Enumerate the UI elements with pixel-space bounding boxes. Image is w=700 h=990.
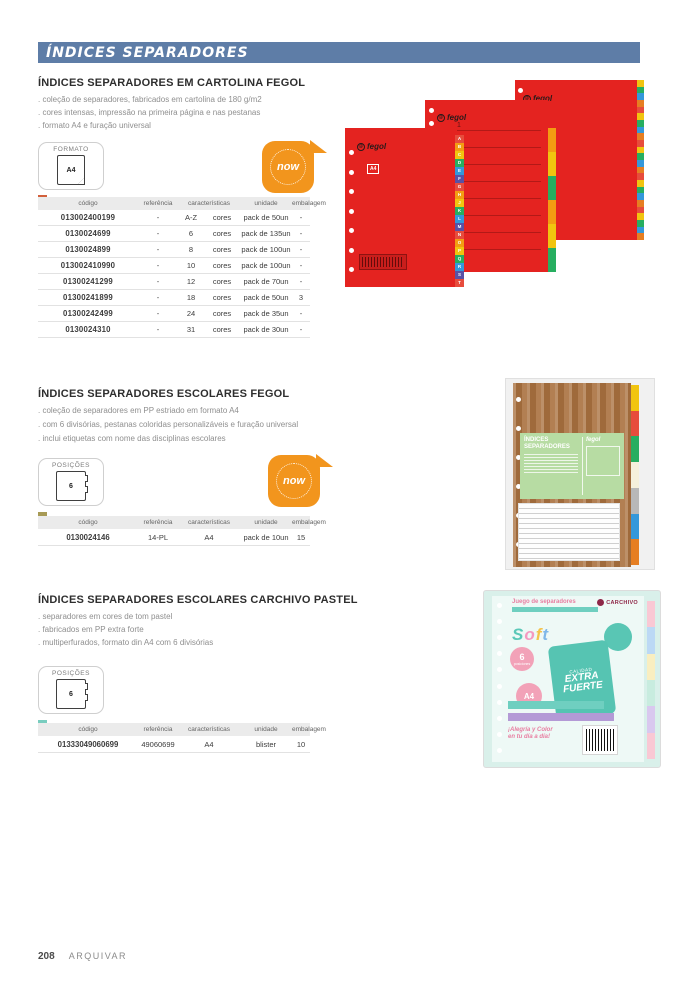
pastel-subtitle-pill bbox=[512, 607, 598, 612]
col-header-caracteristicas: características bbox=[178, 200, 240, 207]
soft-logo-letter: S bbox=[512, 625, 524, 645]
cell-carac-num: 24 bbox=[178, 309, 204, 318]
icon-tab bbox=[85, 475, 88, 482]
col-header-caracteristicas: características bbox=[178, 519, 240, 526]
positions-caption: posiciones bbox=[514, 662, 531, 666]
carchivo-logo-text: CARCHIVO bbox=[606, 600, 638, 606]
posicoes-label: POSIÇÕES bbox=[39, 670, 103, 677]
fegol-logo-text: fegol bbox=[367, 142, 386, 151]
col-header-referencia: referência bbox=[138, 200, 178, 207]
index-tab bbox=[637, 147, 644, 154]
alphabet-tab: T bbox=[455, 279, 464, 287]
table-row: 0130024146 14-PL A4 pack de 10un 15 bbox=[38, 529, 310, 546]
icon-tab bbox=[85, 486, 88, 493]
index-tab bbox=[647, 601, 655, 627]
index-tab bbox=[637, 167, 644, 174]
table-row: 0130024310 - 31 cores pack de 30un - bbox=[38, 322, 310, 338]
cell-unidade: blister bbox=[240, 740, 292, 749]
posicoes-value: 6 bbox=[69, 483, 73, 490]
barcode-lines bbox=[586, 729, 614, 751]
index-tab bbox=[637, 233, 644, 240]
table-header-row: código referência características unidad… bbox=[38, 516, 310, 529]
section-carchivo-pastel: ÍNDICES SEPARADORES ESCOLARES CARCHIVO P… bbox=[38, 594, 498, 649]
index-tab bbox=[647, 680, 655, 706]
index-tab bbox=[637, 173, 644, 180]
now-badge-ring: now bbox=[270, 149, 306, 185]
punch-hole bbox=[349, 228, 354, 233]
punch-hole bbox=[349, 209, 354, 214]
footer-section-label: ARQUIVAR bbox=[69, 951, 127, 961]
index-number-line: 4 bbox=[457, 165, 541, 182]
cell-embalagem: - bbox=[292, 213, 310, 222]
index-tab bbox=[637, 140, 644, 147]
fegol-logo-text: fegol bbox=[586, 437, 620, 443]
product-table-pastel: código referência características unidad… bbox=[38, 723, 310, 753]
index-number-line: 5 bbox=[457, 182, 541, 199]
index-tab bbox=[637, 120, 644, 127]
size-value: A4 bbox=[524, 692, 534, 701]
cell-referencia: 14-PL bbox=[138, 533, 178, 542]
page-title: ÍNDICES SEPARADORES bbox=[46, 45, 249, 61]
tagline-line1: ¡Alegría y Color bbox=[508, 727, 553, 734]
index-number-list: 12345678 bbox=[457, 114, 541, 250]
col-header-unidade: unidade bbox=[240, 200, 292, 207]
index-tab bbox=[631, 539, 639, 565]
cell-referencia: - bbox=[138, 309, 178, 318]
alphabet-tab: S bbox=[455, 271, 464, 279]
barcode bbox=[359, 254, 407, 270]
cell-codigo: 01333049060699 bbox=[38, 740, 138, 749]
index-tab bbox=[637, 113, 644, 120]
punch-hole bbox=[497, 684, 502, 689]
now-badge: now bbox=[262, 141, 314, 193]
index-tab bbox=[637, 153, 644, 160]
cell-caracteristicas: A4 bbox=[178, 740, 240, 749]
carchivo-logo: CARCHIVO bbox=[597, 599, 638, 606]
index-tab bbox=[637, 107, 644, 114]
soft-logo-letter: t bbox=[542, 625, 549, 645]
label-title-line2: SEPARADORES bbox=[524, 444, 578, 451]
product-photo-escolares: ÍNDICES SEPARADORES fegol bbox=[505, 378, 655, 570]
cell-embalagem: - bbox=[292, 245, 310, 254]
product-title: ÍNDICES SEPARADORES EM CARTOLINA FEGOL bbox=[38, 77, 458, 89]
product-table-cartolina: código referência características unidad… bbox=[38, 197, 310, 338]
cell-codigo: 0130024146 bbox=[38, 533, 138, 542]
barcode bbox=[582, 725, 618, 755]
cell-carac-num: 18 bbox=[178, 293, 204, 302]
cell-codigo: 0130024699 bbox=[38, 229, 138, 238]
index-tab bbox=[631, 385, 639, 411]
index-number-line: 3 bbox=[457, 148, 541, 165]
index-tab bbox=[548, 176, 556, 200]
now-badge: now bbox=[268, 455, 320, 507]
index-tab bbox=[548, 248, 556, 272]
info-band-purple bbox=[508, 713, 614, 721]
punch-hole bbox=[497, 716, 502, 721]
posicoes-value: 6 bbox=[69, 691, 73, 698]
alphabet-tab: H bbox=[455, 191, 464, 199]
punch-hole bbox=[497, 635, 502, 640]
index-tab bbox=[637, 133, 644, 140]
feature-bullet: fabricados em PP extra forte bbox=[38, 623, 498, 636]
page-footer: 208 ARQUIVAR bbox=[38, 951, 127, 962]
cell-carac-text: cores bbox=[204, 277, 240, 286]
info-band-teal bbox=[508, 701, 604, 709]
feature-bullet: multiperfurados, formato din A4 com 6 di… bbox=[38, 636, 498, 649]
cell-codigo: 0130024310 bbox=[38, 325, 138, 334]
cell-codigo: 0130024899 bbox=[38, 245, 138, 254]
cell-unidade: pack de 50un bbox=[240, 213, 292, 222]
tab-strip-pastel bbox=[647, 601, 657, 759]
product-photo-divider-front: @fegol A4 bbox=[345, 128, 455, 287]
punch-hole bbox=[429, 108, 434, 113]
cell-referencia: - bbox=[138, 261, 178, 270]
icon-tab bbox=[85, 683, 88, 690]
fegol-at-icon: @ bbox=[437, 114, 445, 122]
index-number-line: 6 bbox=[457, 199, 541, 216]
index-tab bbox=[631, 436, 639, 462]
punch-hole bbox=[516, 426, 521, 431]
cell-carac-text: cores bbox=[204, 213, 240, 222]
cell-unidade: pack de 10un bbox=[240, 533, 292, 542]
index-tab bbox=[637, 193, 644, 200]
index-tab bbox=[637, 180, 644, 187]
cell-referencia: - bbox=[138, 325, 178, 334]
col-header-codigo: código bbox=[38, 519, 138, 526]
positions-circle: 6 posiciones bbox=[510, 647, 534, 671]
punch-hole bbox=[497, 667, 502, 672]
feature-bullet: cores intensas, impressão na primeira pá… bbox=[38, 106, 458, 119]
index-tab bbox=[548, 200, 556, 224]
col-header-embalagem: embalagem bbox=[292, 726, 310, 733]
index-tab bbox=[637, 213, 644, 220]
punch-hole bbox=[349, 267, 354, 272]
index-tab bbox=[637, 93, 644, 100]
posicoes-label: POSIÇÕES bbox=[39, 462, 103, 469]
page-fold-corner bbox=[77, 177, 85, 185]
product-title: ÍNDICES SEPARADORES ESCOLARES CARCHIVO P… bbox=[38, 594, 498, 606]
cell-referencia: - bbox=[138, 229, 178, 238]
soft-logo: Soft bbox=[512, 625, 549, 645]
cell-referencia: - bbox=[138, 213, 178, 222]
cell-carac-num: A-Z bbox=[178, 213, 204, 222]
now-badge-tail bbox=[316, 454, 333, 467]
feature-bullet: inclui etiquetas com nome das disciplina… bbox=[38, 432, 498, 446]
now-badge-tail bbox=[310, 140, 327, 153]
cell-carac-text: cores bbox=[204, 245, 240, 254]
index-tab bbox=[637, 227, 644, 234]
alphabet-tab: L bbox=[455, 215, 464, 223]
punch-hole bbox=[518, 88, 523, 93]
index-tab bbox=[637, 187, 644, 194]
alphabet-tab: K bbox=[455, 207, 464, 215]
table-row: 01333049060699 49060699 A4 blister 10 bbox=[38, 736, 310, 753]
punch-hole bbox=[429, 121, 434, 126]
punch-hole bbox=[349, 248, 354, 253]
index-number-line: 8 bbox=[457, 233, 541, 250]
tagline: ¡Alegría y Color en tu día a día! bbox=[508, 727, 553, 741]
tab-strip-back bbox=[637, 80, 644, 240]
cell-embalagem: 10 bbox=[292, 740, 310, 749]
cell-carac-text: cores bbox=[204, 229, 240, 238]
cell-carac-num: 12 bbox=[178, 277, 204, 286]
index-tab bbox=[647, 733, 655, 759]
cell-carac-text: cores bbox=[204, 325, 240, 334]
tab-strip-middle bbox=[548, 128, 556, 272]
table-header-row: código referência características unidad… bbox=[38, 723, 310, 736]
cell-unidade: pack de 35un bbox=[240, 309, 292, 318]
index-tab bbox=[637, 100, 644, 107]
pastel-title: Juego de separadores bbox=[512, 599, 598, 605]
formato-badge: FORMATO A4 bbox=[38, 142, 104, 190]
col-header-unidade: unidade bbox=[240, 519, 292, 526]
alphabet-tab: N bbox=[455, 231, 464, 239]
formato-label: FORMATO bbox=[39, 146, 103, 153]
barcode-lines bbox=[362, 257, 404, 267]
subject-labels-sheet bbox=[518, 503, 620, 561]
cell-embalagem: - bbox=[292, 277, 310, 286]
cell-embalagem: 15 bbox=[292, 533, 310, 542]
fegol-logo: @fegol bbox=[357, 136, 386, 154]
now-badge-label: now bbox=[277, 161, 299, 173]
page-number: 208 bbox=[38, 951, 55, 962]
now-badge-ring: now bbox=[276, 463, 312, 499]
cell-unidade: pack de 100un bbox=[240, 261, 292, 270]
col-header-unidade: unidade bbox=[240, 726, 292, 733]
index-tab bbox=[548, 128, 556, 152]
icon-tab bbox=[85, 694, 88, 701]
alphabet-tab: G bbox=[455, 183, 464, 191]
index-tab bbox=[637, 207, 644, 214]
cell-referencia: 49060699 bbox=[138, 740, 178, 749]
feature-bullet: com 6 divisórias, pestanas coloridas per… bbox=[38, 418, 498, 432]
fegol-at-icon: @ bbox=[357, 143, 365, 151]
cell-caracteristicas: A4 bbox=[178, 533, 240, 542]
punch-hole bbox=[497, 603, 502, 608]
index-number-line: 1 bbox=[457, 114, 541, 131]
table-row: 0130024899 - 8 cores pack de 100un - bbox=[38, 242, 310, 258]
cell-embalagem: - bbox=[292, 325, 310, 334]
alphabet-tab: D bbox=[455, 159, 464, 167]
cell-codigo: 013002400199 bbox=[38, 213, 138, 222]
cell-unidade: pack de 50un bbox=[240, 293, 292, 302]
alphabet-tab: F bbox=[455, 175, 464, 183]
cell-codigo: 01300241299 bbox=[38, 277, 138, 286]
posicoes-badge: POSIÇÕES 6 bbox=[38, 458, 104, 506]
product-title: ÍNDICES SEPARADORES ESCOLARES FEGOL bbox=[38, 388, 498, 400]
cell-carac-num: 31 bbox=[178, 325, 204, 334]
divider-positions-icon: 6 bbox=[56, 679, 86, 709]
table-row: 0130024699 - 6 cores pack de 135un - bbox=[38, 226, 310, 242]
product-table-escolares: código referência características unidad… bbox=[38, 516, 310, 546]
index-tab bbox=[647, 627, 655, 653]
alphabet-tab: Q bbox=[455, 255, 464, 263]
col-header-caracteristicas: características bbox=[178, 726, 240, 733]
product-label: ÍNDICES SEPARADORES fegol bbox=[520, 433, 624, 499]
col-header-embalagem: embalagem bbox=[292, 200, 310, 207]
formato-value: A4 bbox=[67, 167, 76, 174]
tab-strip-front-az: ABCDEFGHJKLMNOPQRST bbox=[455, 135, 464, 287]
cell-carac-text: cores bbox=[204, 261, 240, 270]
punch-hole bbox=[349, 189, 354, 194]
table-row: 01300241299 - 12 cores pack de 70un - bbox=[38, 274, 310, 290]
section-cartolina: ÍNDICES SEPARADORES EM CARTOLINA FEGOL c… bbox=[38, 77, 458, 132]
index-tab bbox=[637, 127, 644, 134]
a4-size-mark: A4 bbox=[367, 164, 379, 174]
punch-hole bbox=[349, 170, 354, 175]
soft-logo-letter: f bbox=[536, 625, 543, 645]
cell-carac-num: 6 bbox=[178, 229, 204, 238]
punch-hole bbox=[497, 651, 502, 656]
cell-embalagem: - bbox=[292, 309, 310, 318]
table-header-row: código referência características unidad… bbox=[38, 197, 310, 210]
punch-hole bbox=[497, 700, 502, 705]
table-row: 013002400199 - A-Z cores pack de 50un - bbox=[38, 210, 310, 226]
section-header-bar: ÍNDICES SEPARADORES bbox=[38, 42, 640, 63]
index-tab bbox=[631, 488, 639, 514]
cell-unidade: pack de 70un bbox=[240, 277, 292, 286]
index-tab bbox=[637, 80, 644, 87]
cell-embalagem: - bbox=[292, 261, 310, 270]
cell-carac-text: cores bbox=[204, 293, 240, 302]
now-badge-label: now bbox=[283, 475, 305, 487]
feature-bullet: separadores em cores de tom pastel bbox=[38, 610, 498, 623]
cell-unidade: pack de 135un bbox=[240, 229, 292, 238]
tagline-line2: en tu día a día! bbox=[508, 734, 553, 741]
index-number-line: 7 bbox=[457, 216, 541, 233]
label-spec-box bbox=[586, 446, 620, 476]
alphabet-tab: R bbox=[455, 263, 464, 271]
table-row: 01300242499 - 24 cores pack de 35un - bbox=[38, 306, 310, 322]
cell-referencia: - bbox=[138, 277, 178, 286]
alphabet-tab: J bbox=[455, 199, 464, 207]
tab-strip-escolares bbox=[631, 385, 639, 565]
cell-codigo: 01300242499 bbox=[38, 309, 138, 318]
punch-hole bbox=[497, 619, 502, 624]
index-tab bbox=[631, 514, 639, 540]
col-header-codigo: código bbox=[38, 726, 138, 733]
cell-codigo: 01300241899 bbox=[38, 293, 138, 302]
col-header-referencia: referência bbox=[138, 726, 178, 733]
divider-positions-icon: 6 bbox=[56, 471, 86, 501]
cell-unidade: pack de 100un bbox=[240, 245, 292, 254]
carchivo-logo-icon bbox=[597, 599, 604, 606]
punch-holes bbox=[429, 108, 434, 126]
punch-hole bbox=[349, 150, 354, 155]
index-tab bbox=[548, 152, 556, 176]
cell-codigo: 013002410990 bbox=[38, 261, 138, 270]
cell-unidade: pack de 30un bbox=[240, 325, 292, 334]
feature-bullet: coleção de separadores em PP estriado em… bbox=[38, 404, 498, 418]
feature-bullet: coleção de separadores, fabricados em ca… bbox=[38, 93, 458, 106]
index-tab bbox=[637, 160, 644, 167]
positions-value: 6 bbox=[519, 652, 524, 662]
index-tab bbox=[647, 706, 655, 732]
index-tab bbox=[637, 87, 644, 94]
alphabet-tab: B bbox=[455, 143, 464, 151]
index-tab bbox=[637, 220, 644, 227]
alphabet-tab: O bbox=[455, 239, 464, 247]
index-tab bbox=[548, 224, 556, 248]
col-header-codigo: código bbox=[38, 200, 138, 207]
index-tab bbox=[631, 411, 639, 437]
cell-carac-text: cores bbox=[204, 309, 240, 318]
product-photo-pastel: Juego de separadores CARCHIVO Soft CALID… bbox=[483, 590, 661, 768]
col-header-referencia: referência bbox=[138, 519, 178, 526]
table-row: 01300241899 - 18 cores pack de 50un 3 bbox=[38, 290, 310, 306]
alphabet-tab: A bbox=[455, 135, 464, 143]
index-tab bbox=[647, 654, 655, 680]
index-number-line: 2 bbox=[457, 131, 541, 148]
alphabet-tab: M bbox=[455, 223, 464, 231]
alphabet-tab: C bbox=[455, 151, 464, 159]
pastel-header: Juego de separadores bbox=[512, 599, 598, 612]
cell-referencia: - bbox=[138, 293, 178, 302]
alphabet-tab: E bbox=[455, 167, 464, 175]
index-tab bbox=[637, 200, 644, 207]
cell-referencia: - bbox=[138, 245, 178, 254]
table-row: 013002410990 - 10 cores pack de 100un - bbox=[38, 258, 310, 274]
alphabet-tab: P bbox=[455, 247, 464, 255]
posicoes-badge: POSIÇÕES 6 bbox=[38, 666, 104, 714]
soft-logo-letter: o bbox=[524, 625, 535, 645]
punch-hole bbox=[497, 748, 502, 753]
index-tab bbox=[631, 462, 639, 488]
cell-carac-num: 10 bbox=[178, 261, 204, 270]
cell-carac-num: 8 bbox=[178, 245, 204, 254]
cell-embalagem: 3 bbox=[292, 293, 310, 302]
a4-page-icon: A4 bbox=[57, 155, 85, 185]
col-header-embalagem: embalagem bbox=[292, 519, 310, 526]
section-escolares-fegol: ÍNDICES SEPARADORES ESCOLARES FEGOL cole… bbox=[38, 388, 498, 446]
punch-hole bbox=[516, 397, 521, 402]
punch-hole bbox=[497, 732, 502, 737]
label-fineprint bbox=[524, 452, 578, 474]
punch-holes bbox=[349, 150, 354, 272]
punch-holes bbox=[497, 603, 502, 753]
cell-embalagem: - bbox=[292, 229, 310, 238]
